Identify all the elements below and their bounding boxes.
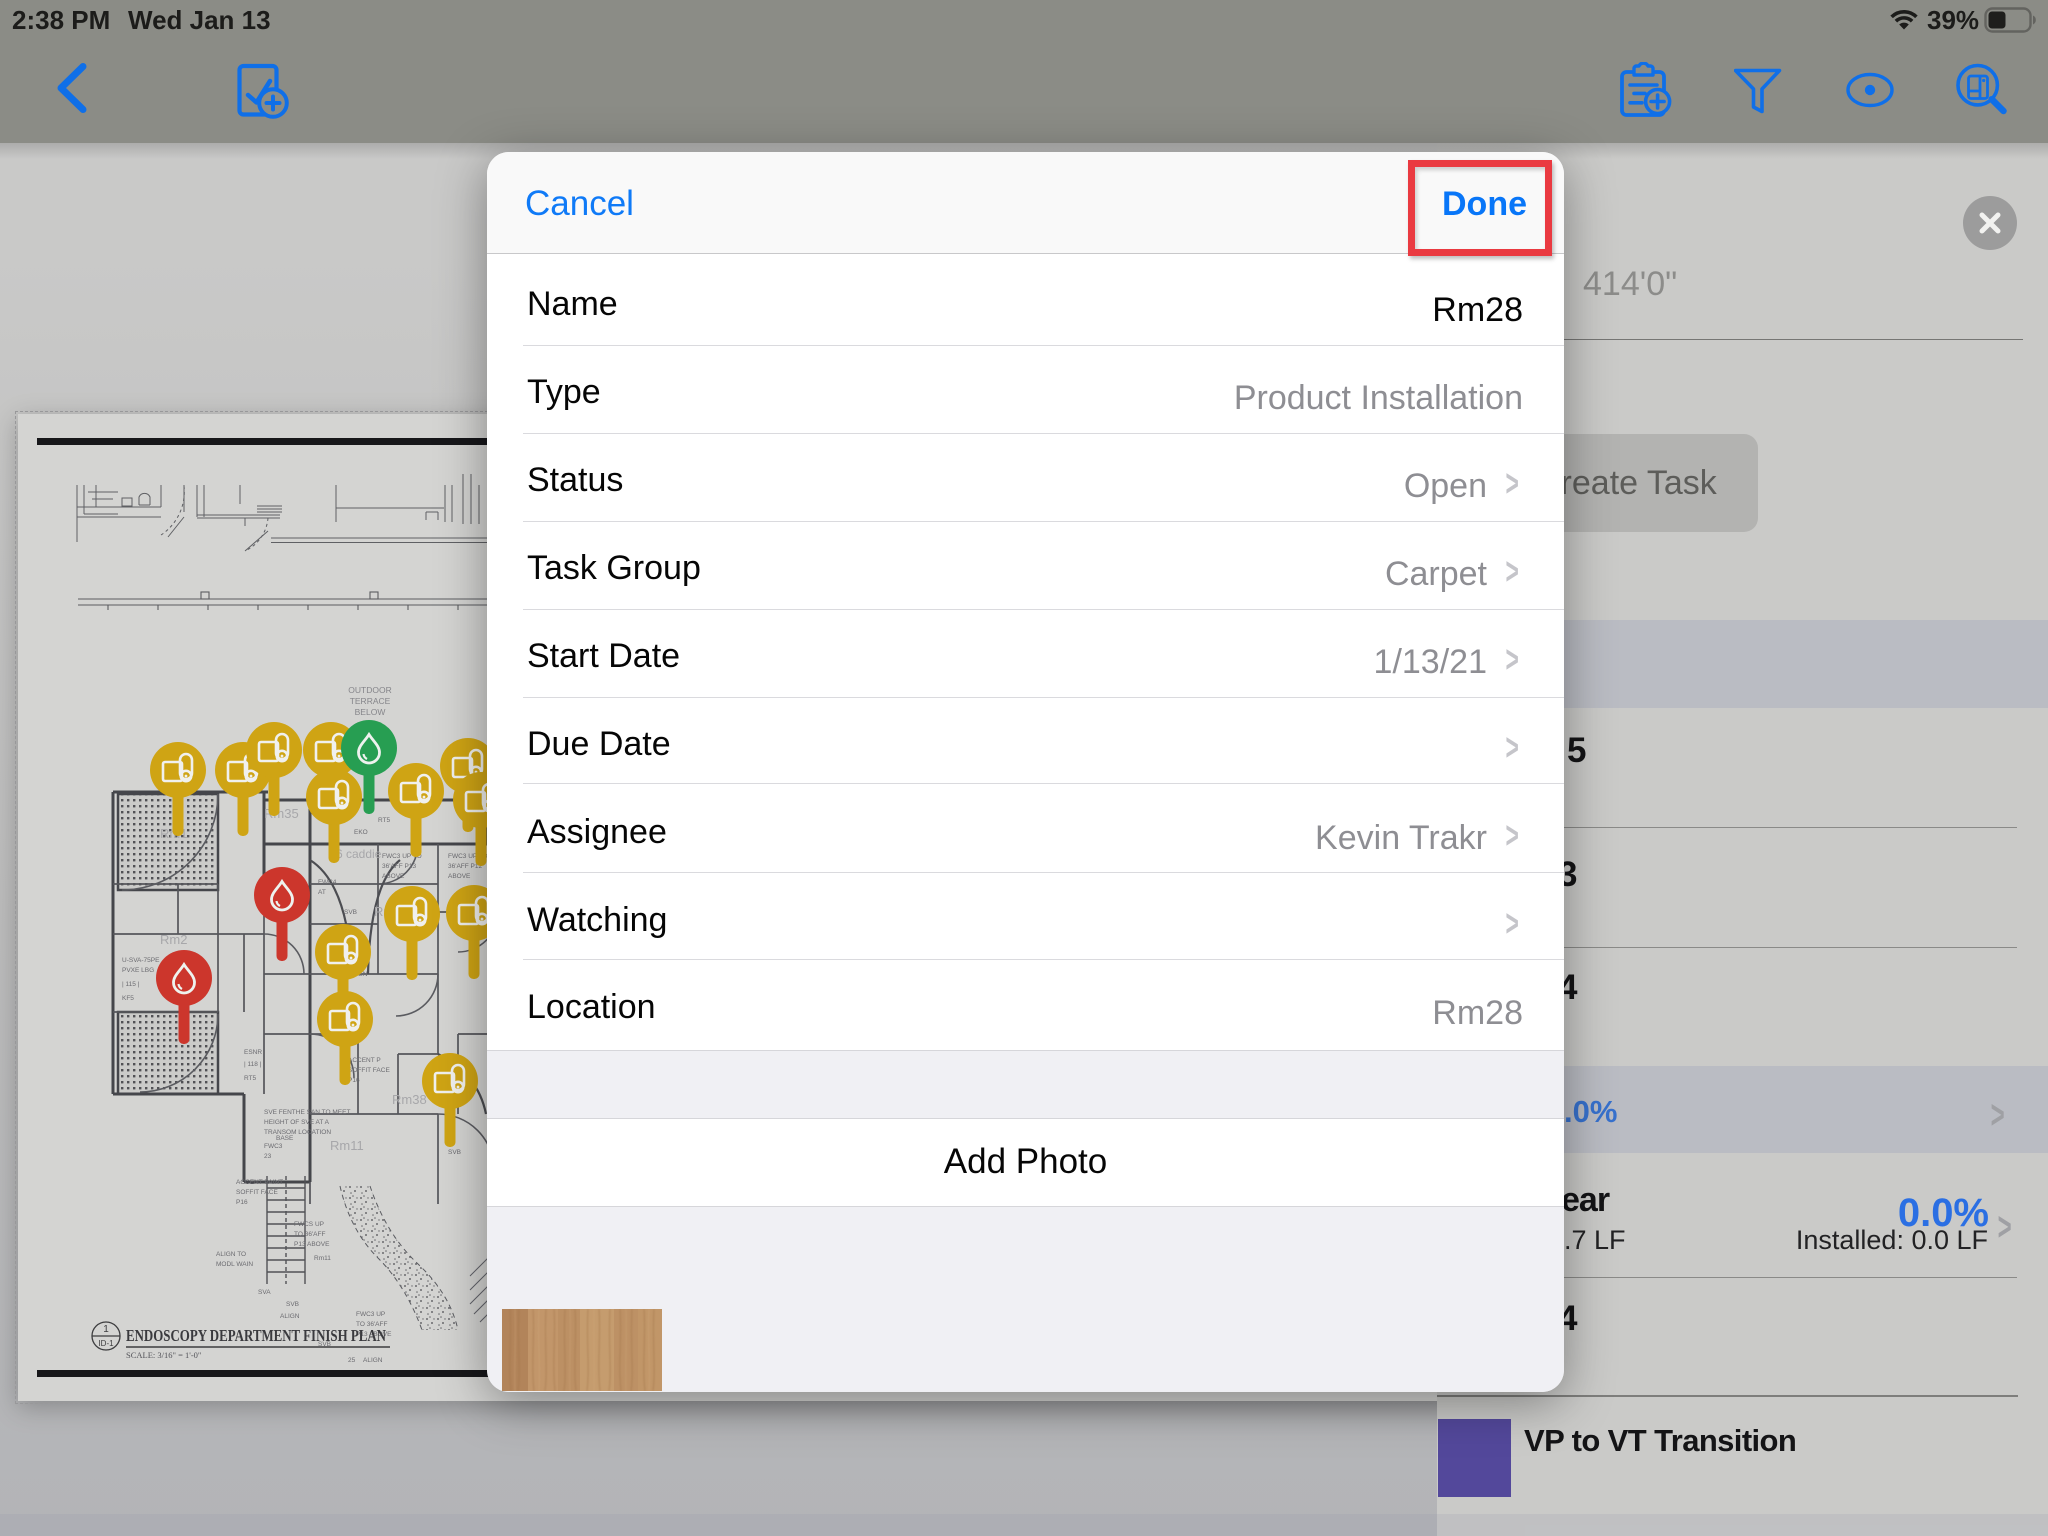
svg-text:ABOVE: ABOVE bbox=[382, 873, 405, 880]
svg-text:Rm2: Rm2 bbox=[160, 932, 187, 947]
svg-text:AT: AT bbox=[318, 889, 326, 896]
svg-text:P13 ABOVE: P13 ABOVE bbox=[294, 1241, 330, 1248]
svg-text:TO 36'AFF: TO 36'AFF bbox=[294, 1231, 325, 1238]
svg-text:HEIGHT OF SVE AT A: HEIGHT OF SVE AT A bbox=[264, 1119, 330, 1126]
svg-text:Rm11: Rm11 bbox=[330, 1138, 364, 1153]
svg-text:SOFFIT FACE: SOFFIT FACE bbox=[348, 1067, 390, 1074]
svg-text:ALIGN: ALIGN bbox=[280, 1313, 300, 1320]
svg-text:ABOVE: ABOVE bbox=[448, 873, 471, 880]
svg-text:P16: P16 bbox=[236, 1199, 248, 1206]
svg-text:RT5: RT5 bbox=[244, 1075, 257, 1082]
svg-text:SCALE: 3/16" = 1'-0": SCALE: 3/16" = 1'-0" bbox=[126, 1350, 201, 1360]
svg-text:SVB: SVB bbox=[286, 1301, 299, 1308]
svg-text:| 118 |: | 118 | bbox=[244, 1061, 262, 1068]
svg-text:| 115 |: | 115 | bbox=[122, 981, 140, 988]
svg-text:ACCENT PAINT: ACCENT PAINT bbox=[236, 1179, 283, 1186]
svg-text:23: 23 bbox=[264, 1153, 272, 1160]
svg-text:ACCENT P: ACCENT P bbox=[348, 1057, 381, 1064]
svg-text:U-SVA-75PE: U-SVA-75PE bbox=[122, 957, 160, 964]
svg-text:PVXE LBG: PVXE LBG bbox=[122, 967, 154, 974]
svg-text:25: 25 bbox=[348, 1357, 356, 1364]
svg-text:36'AFF P13: 36'AFF P13 bbox=[382, 863, 417, 870]
svg-text:Rm38: Rm38 bbox=[392, 1092, 427, 1107]
svg-text:ESNR: ESNR bbox=[244, 1049, 262, 1056]
svg-text:OUTDOOR: OUTDOOR bbox=[348, 685, 391, 695]
svg-text:6 caddie: 6 caddie bbox=[336, 847, 382, 861]
svg-text:SVA: SVA bbox=[258, 1289, 271, 1296]
svg-text:EKO: EKO bbox=[354, 829, 368, 836]
svg-text:SVB: SVB bbox=[344, 909, 357, 916]
svg-text:TRANSOM LOCATION: TRANSOM LOCATION bbox=[264, 1129, 331, 1136]
svg-text:RT5: RT5 bbox=[378, 817, 391, 824]
svg-text:KF5: KF5 bbox=[122, 995, 134, 1002]
svg-text:BASE: BASE bbox=[276, 1135, 294, 1142]
svg-text:SOFFIT FACE: SOFFIT FACE bbox=[236, 1189, 278, 1196]
svg-text:ALIGN: ALIGN bbox=[363, 1357, 383, 1364]
svg-text:SVB: SVB bbox=[448, 1149, 461, 1156]
svg-text:FWC3: FWC3 bbox=[264, 1143, 283, 1150]
svg-text:ALIGN TO: ALIGN TO bbox=[216, 1251, 246, 1258]
svg-text:ID-1: ID-1 bbox=[98, 1339, 114, 1348]
svg-text:SVE FENTHE SAN TO MEET: SVE FENTHE SAN TO MEET bbox=[264, 1109, 350, 1116]
svg-text:MODL WAIN: MODL WAIN bbox=[216, 1261, 253, 1268]
svg-text:BELOW: BELOW bbox=[355, 707, 386, 717]
svg-text:FWCS UP: FWCS UP bbox=[294, 1221, 324, 1228]
svg-text:TERRACE: TERRACE bbox=[350, 696, 391, 706]
svg-text:Rm11: Rm11 bbox=[314, 1255, 331, 1262]
svg-text:ENDOSCOPY DEPARTMENT FINISH: ENDOSCOPY DEPARTMENT FINISH PLAN bbox=[126, 1326, 386, 1345]
svg-text:1: 1 bbox=[103, 1324, 109, 1335]
svg-text:FWC3 UP: FWC3 UP bbox=[356, 1311, 385, 1318]
svg-text:FWC4: FWC4 bbox=[318, 879, 337, 886]
